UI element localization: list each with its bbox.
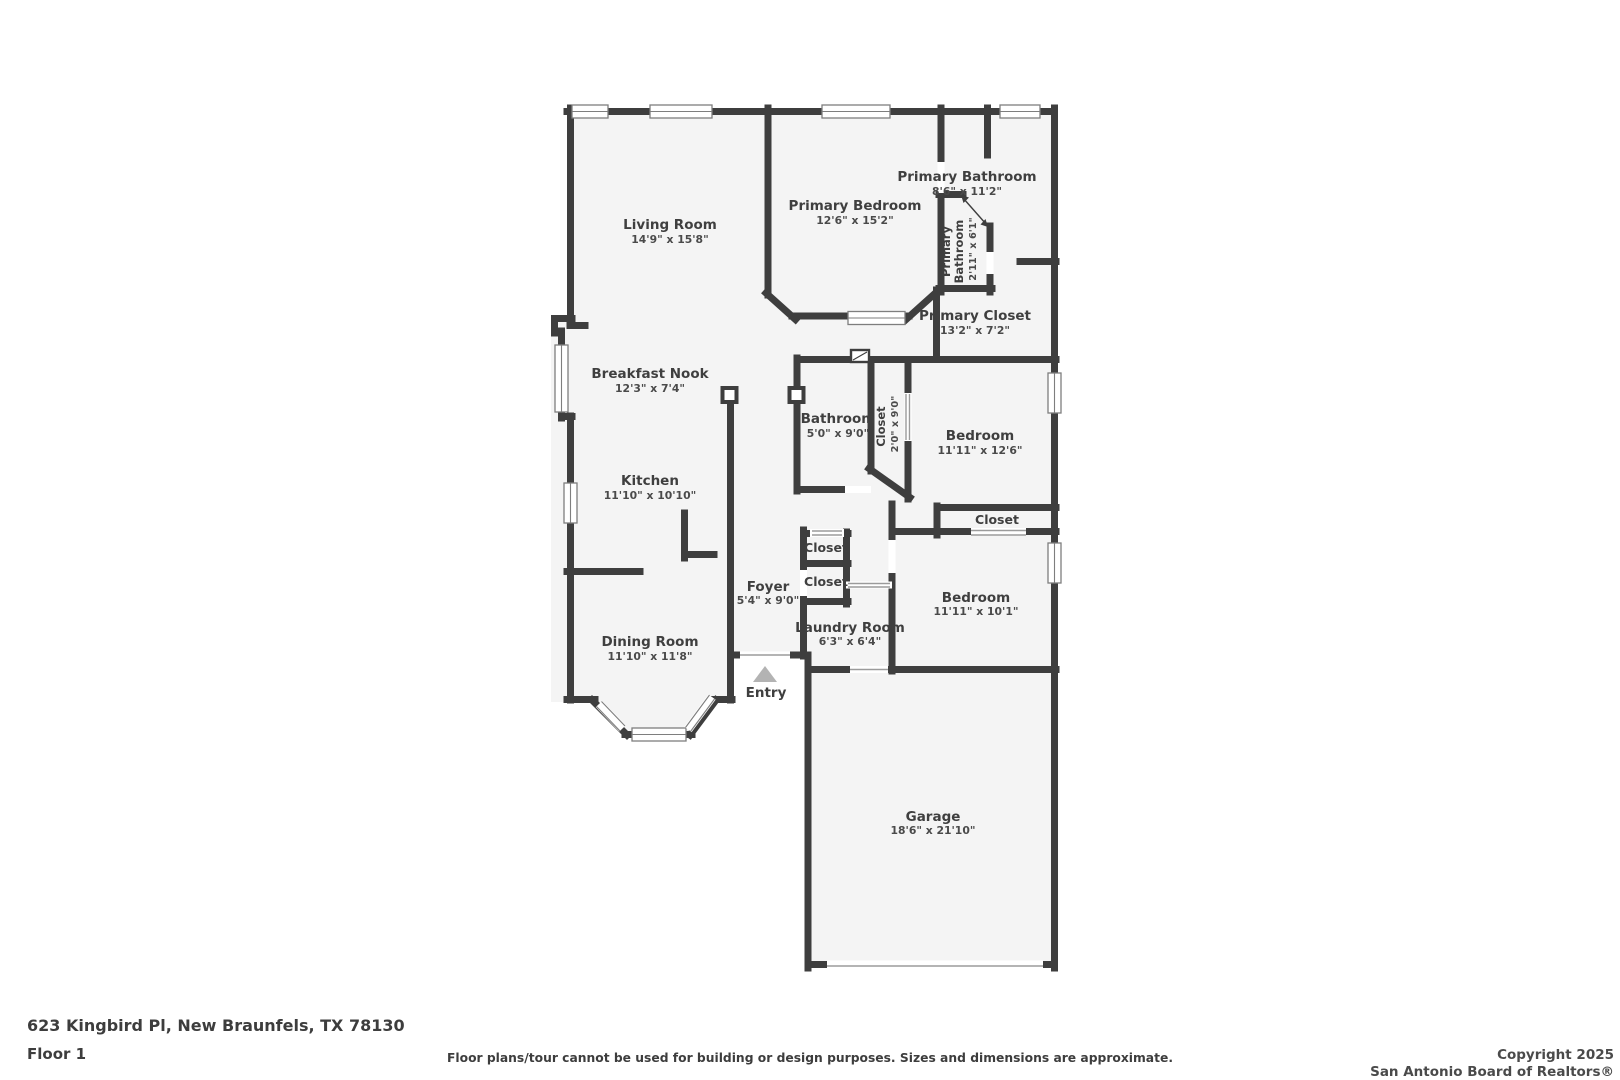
room-dims-breakfast-nook: 12'3" x 7'4" [615,382,685,395]
room-label-hall-closet: Closet 2'0" x 9'0" [870,396,901,453]
room-label-garage: Garage [906,809,961,825]
room-dims-bedroom-2: 11'11" x 10'1" [934,605,1019,618]
room-label-laundry-room: Laundry Room [795,620,905,636]
room-dims-bathroom: 5'0" x 9'0" [807,427,869,440]
room-dims-primary-bedroom: 12'6" x 15'2" [816,214,893,227]
room-label-kitchen: Kitchen [621,473,679,489]
room-dims-bedroom-1: 11'11" x 12'6" [938,444,1023,457]
room-label-primary-bedroom: Primary Bedroom [789,198,922,214]
room-label-bathroom: Bathroom [801,411,876,427]
copyright-line2: San Antonio Board of Realtors® [1370,1064,1614,1080]
room-dims-primary-closet: 13'2" x 7'2" [940,324,1010,337]
room-dims-foyer: 5'4" x 9'0" [737,594,799,607]
floorplan-page: Living Room 14'9" x 15'8" Primary Bedroo… [0,0,1620,1080]
room-label-bedroom-1-closet: Closet [975,512,1019,527]
room-label-entry: Entry [746,685,787,701]
room-label-living-room: Living Room [623,217,717,233]
room-label-breakfast-nook: Breakfast Nook [591,366,709,382]
copyright-text: Copyright 2025 San Antonio Board of Real… [1370,1047,1614,1080]
room-dims-living-room: 14'9" x 15'8" [631,233,708,246]
room-dims-laundry-room: 6'3" x 6'4" [819,635,881,648]
room-dims-dining-room: 11'10" x 11'8" [608,650,693,663]
floorplan-svg: Living Room 14'9" x 15'8" Primary Bedroo… [0,0,1620,1080]
copyright-line1: Copyright 2025 [1370,1047,1614,1064]
room-label-bedroom-1: Bedroom [946,428,1014,444]
room-label-dining-room: Dining Room [601,634,698,650]
room-label-foyer: Foyer [747,579,790,595]
room-label-primary-bathroom: Primary Bathroom [897,169,1036,185]
room-label-bedroom-2: Bedroom [942,590,1010,606]
room-dims-garage: 18'6" x 21'10" [891,824,976,837]
room-dims-primary-bathroom: 8'6" x 11'2" [932,185,1002,198]
room-label-foyer-closet-lower: Closet [804,574,848,589]
room-label-primary-half-bathroom: Primary Bathroom 2'11" x 6'1" [935,215,979,284]
room-dims-kitchen: 11'10" x 10'10" [604,489,696,502]
entry-arrow-icon [753,666,777,682]
address-text: 623 Kingbird Pl, New Braunfels, TX 78130 [27,1016,405,1035]
room-label-foyer-closet-upper: Closet [804,540,848,555]
room-label-primary-closet: Primary Closet [919,308,1032,324]
